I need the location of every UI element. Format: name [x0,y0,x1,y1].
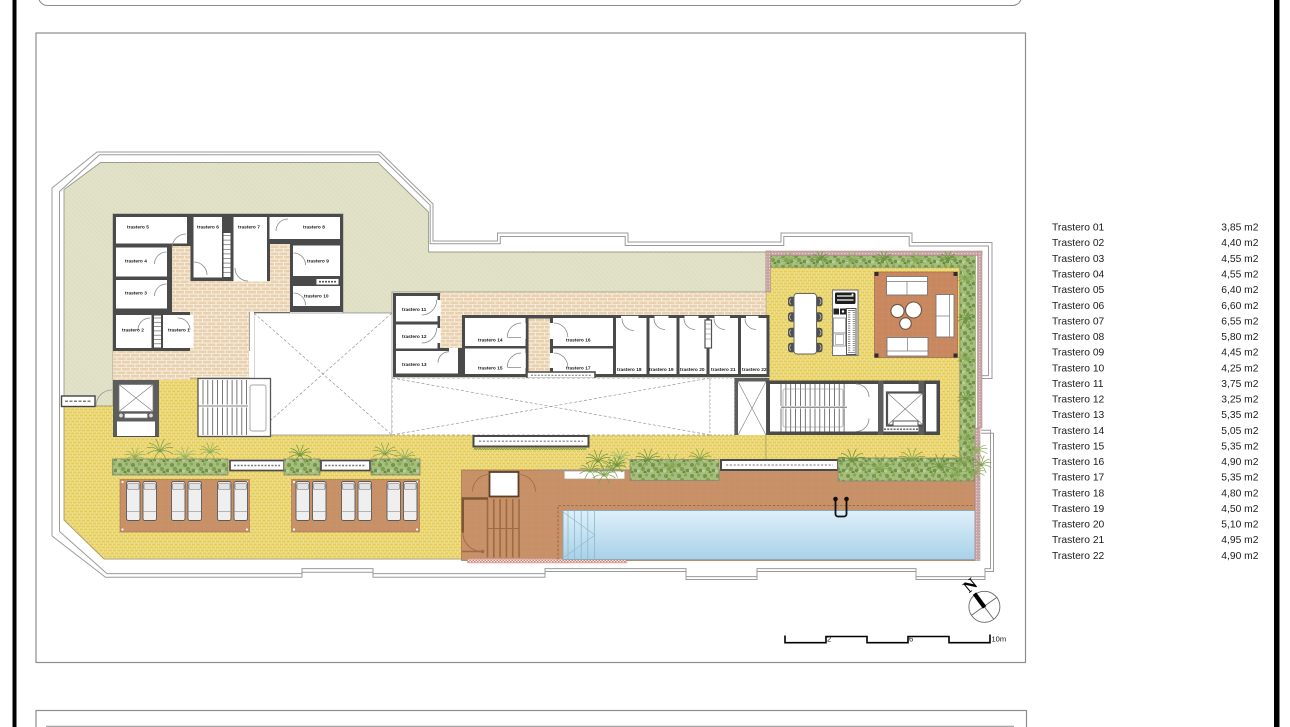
svg-text:Trastero 16: Trastero 16 [1052,457,1105,468]
svg-text:3,85 m2: 3,85 m2 [1221,223,1258,234]
svg-text:trastero 13: trastero 13 [402,362,427,368]
svg-text:4,25 m2: 4,25 m2 [1221,363,1258,374]
svg-text:trastero 18: trastero 18 [617,367,642,373]
svg-text:Trastero 08: Trastero 08 [1052,332,1105,343]
svg-text:Trastero 12: Trastero 12 [1052,395,1105,406]
svg-text:5,35 m2: 5,35 m2 [1221,441,1258,452]
svg-text:4,90 m2: 4,90 m2 [1221,457,1258,468]
svg-text:5,05 m2: 5,05 m2 [1221,426,1258,437]
svg-text:Trastero 04: Trastero 04 [1052,270,1105,281]
svg-text:2: 2 [827,635,831,644]
svg-text:4,55 m2: 4,55 m2 [1221,254,1258,265]
svg-text:6,55 m2: 6,55 m2 [1221,316,1258,327]
svg-text:6,40 m2: 6,40 m2 [1221,285,1258,296]
svg-text:trastero 3: trastero 3 [125,291,147,297]
svg-text:Trastero 01: Trastero 01 [1052,223,1105,234]
svg-text:4,95 m2: 4,95 m2 [1221,535,1258,546]
svg-text:Trastero 22: Trastero 22 [1052,551,1105,562]
svg-text:Trastero 03: Trastero 03 [1052,254,1105,265]
svg-text:Trastero 02: Trastero 02 [1052,238,1105,249]
svg-text:6: 6 [909,635,913,644]
svg-text:trastero 4: trastero 4 [125,259,147,265]
svg-text:5,80 m2: 5,80 m2 [1221,332,1258,343]
svg-text:trastero 15: trastero 15 [478,366,503,372]
svg-text:Trastero 18: Trastero 18 [1052,488,1105,499]
svg-text:trastero 17: trastero 17 [566,366,591,372]
svg-text:4,50 m2: 4,50 m2 [1221,504,1258,515]
svg-text:4,45 m2: 4,45 m2 [1221,348,1258,359]
svg-text:Trastero 13: Trastero 13 [1052,410,1105,421]
svg-text:trastero 12: trastero 12 [402,334,427,340]
svg-text:Trastero 14: Trastero 14 [1052,426,1105,437]
svg-text:5,35 m2: 5,35 m2 [1221,410,1258,421]
svg-text:5,10 m2: 5,10 m2 [1221,520,1258,531]
svg-text:10m: 10m [992,635,1007,644]
svg-text:4,55 m2: 4,55 m2 [1221,270,1258,281]
svg-text:trastero 16: trastero 16 [566,338,591,344]
svg-text:Trastero 20: Trastero 20 [1052,520,1105,531]
svg-text:trastero 7: trastero 7 [238,225,260,231]
svg-text:Trastero 15: Trastero 15 [1052,441,1105,452]
svg-text:trastero 9: trastero 9 [307,259,329,265]
svg-text:Trastero 06: Trastero 06 [1052,301,1105,312]
svg-text:Trastero 10: Trastero 10 [1052,363,1105,374]
svg-text:4,90 m2: 4,90 m2 [1221,551,1258,562]
svg-text:6,60 m2: 6,60 m2 [1221,301,1258,312]
svg-text:trastero 5: trastero 5 [127,225,149,231]
svg-text:4,80 m2: 4,80 m2 [1221,488,1258,499]
svg-text:Trastero 21: Trastero 21 [1052,535,1105,546]
svg-text:Trastero 17: Trastero 17 [1052,473,1105,484]
svg-text:trastero 19: trastero 19 [649,367,674,373]
svg-text:trastero 21: trastero 21 [711,367,736,373]
svg-text:Trastero 11: Trastero 11 [1052,379,1104,390]
svg-text:4,40 m2: 4,40 m2 [1221,238,1258,249]
svg-text:trastero 20: trastero 20 [680,367,705,373]
svg-text:3,75 m2: 3,75 m2 [1221,379,1258,390]
svg-text:trastero 10: trastero 10 [304,294,329,300]
svg-text:trastero 14: trastero 14 [478,338,503,344]
svg-text:Trastero 07: Trastero 07 [1052,316,1105,327]
svg-text:Trastero 19: Trastero 19 [1052,504,1105,515]
svg-text:trastero 6: trastero 6 [197,225,219,231]
svg-text:trastero 2: trastero 2 [122,328,144,334]
svg-text:trastero 8: trastero 8 [303,225,325,231]
svg-text:trastero 11: trastero 11 [402,307,427,313]
svg-text:5,35 m2: 5,35 m2 [1221,473,1258,484]
svg-text:trastero 1: trastero 1 [168,328,190,334]
svg-text:trastero 22: trastero 22 [742,367,767,373]
svg-text:Trastero 05: Trastero 05 [1052,285,1105,296]
svg-text:Trastero 09: Trastero 09 [1052,348,1105,359]
svg-text:3,25 m2: 3,25 m2 [1221,395,1258,406]
